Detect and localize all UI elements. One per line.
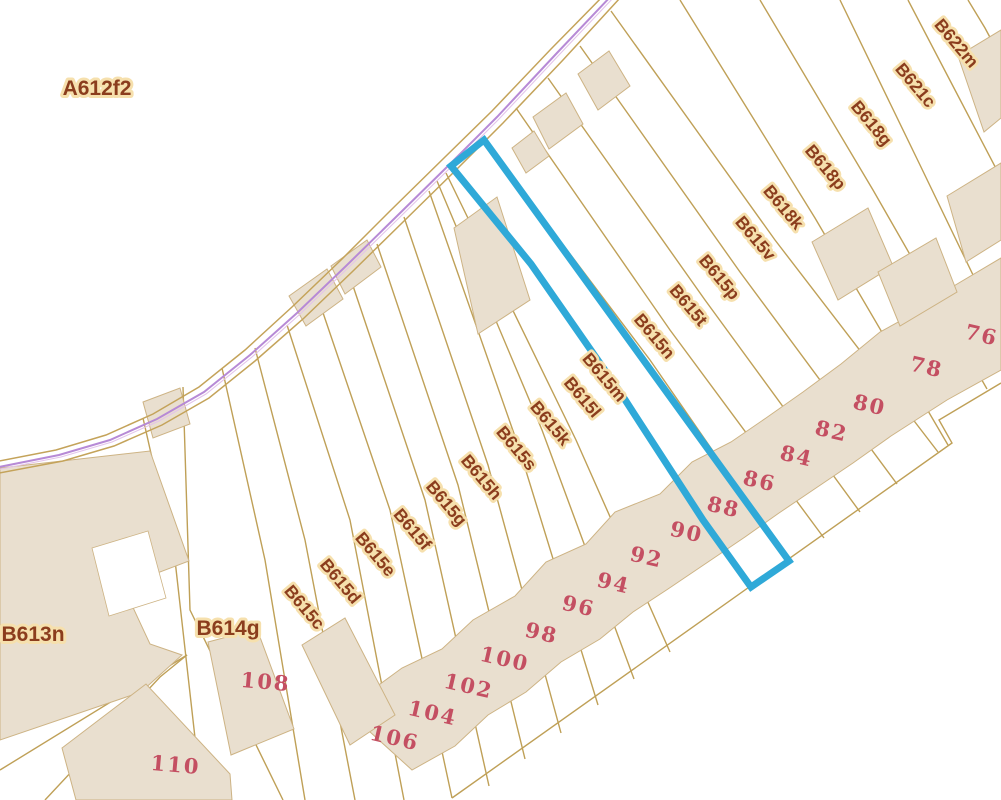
parcel-label: B621c [891,59,940,112]
building [947,163,1001,262]
parcel-label: B615c [280,581,329,634]
parcel-label: B618g [847,97,896,150]
house-number: 110 [150,750,202,779]
parcel-label: B615t [666,280,712,330]
parcel-label: B615v [731,212,780,265]
parcel-label: B615h [457,451,506,504]
house-number: 108 [240,667,292,696]
parcel-label: B615s [492,422,541,475]
cadastral-map[interactable]: A612f2B613nB614g B622mB621cB618gB618pB61… [0,0,1001,800]
area-label: B613n [1,623,64,646]
area-label: A612f2 [63,77,132,100]
parcel-label: B615f [390,504,436,554]
parcel-label: B622m [930,15,982,72]
building [533,93,583,149]
parcel-label: B618k [759,181,808,234]
parcel-label: B615e [351,528,400,581]
road [0,0,620,474]
building [578,51,630,110]
building [812,208,893,300]
area-label: B614g [196,617,259,640]
map-drawing: A612f2B613nB614g B622mB621cB618gB618pB61… [0,0,1001,800]
parcel-label: B618p [801,141,850,194]
